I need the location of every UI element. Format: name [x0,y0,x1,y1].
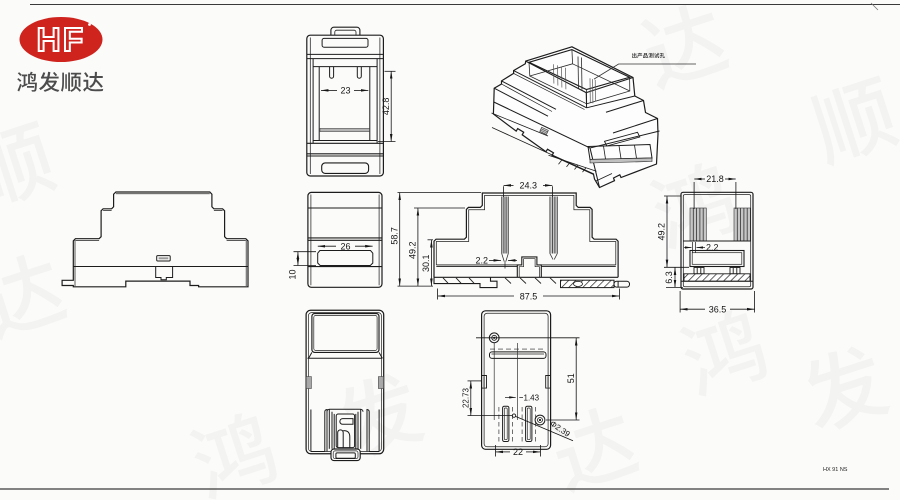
svg-text:30.1: 30.1 [421,254,431,272]
svg-text:2.2: 2.2 [475,256,488,266]
svg-text:51: 51 [566,373,576,383]
svg-text:24.3: 24.3 [520,181,538,191]
svg-text:58.7: 58.7 [390,227,400,245]
svg-text:22.73: 22.73 [462,387,471,408]
svg-text:36.5: 36.5 [709,304,727,314]
svg-text:6.3: 6.3 [664,271,674,284]
svg-text:87.5: 87.5 [520,291,538,301]
svg-text:42.8: 42.8 [381,98,391,116]
svg-text:21.8: 21.8 [706,174,724,184]
svg-text:23: 23 [340,86,350,96]
svg-text:10: 10 [288,269,298,279]
svg-text:HF: HF [37,22,86,59]
svg-text:26: 26 [340,241,350,251]
svg-text:22: 22 [513,447,523,457]
svg-text:2.2: 2.2 [706,243,719,253]
svg-text:1.43: 1.43 [524,394,540,403]
svg-text:49.2: 49.2 [408,241,418,259]
svg-text:HX 91 NS: HX 91 NS [823,467,848,473]
svg-text:49.2: 49.2 [656,223,666,241]
